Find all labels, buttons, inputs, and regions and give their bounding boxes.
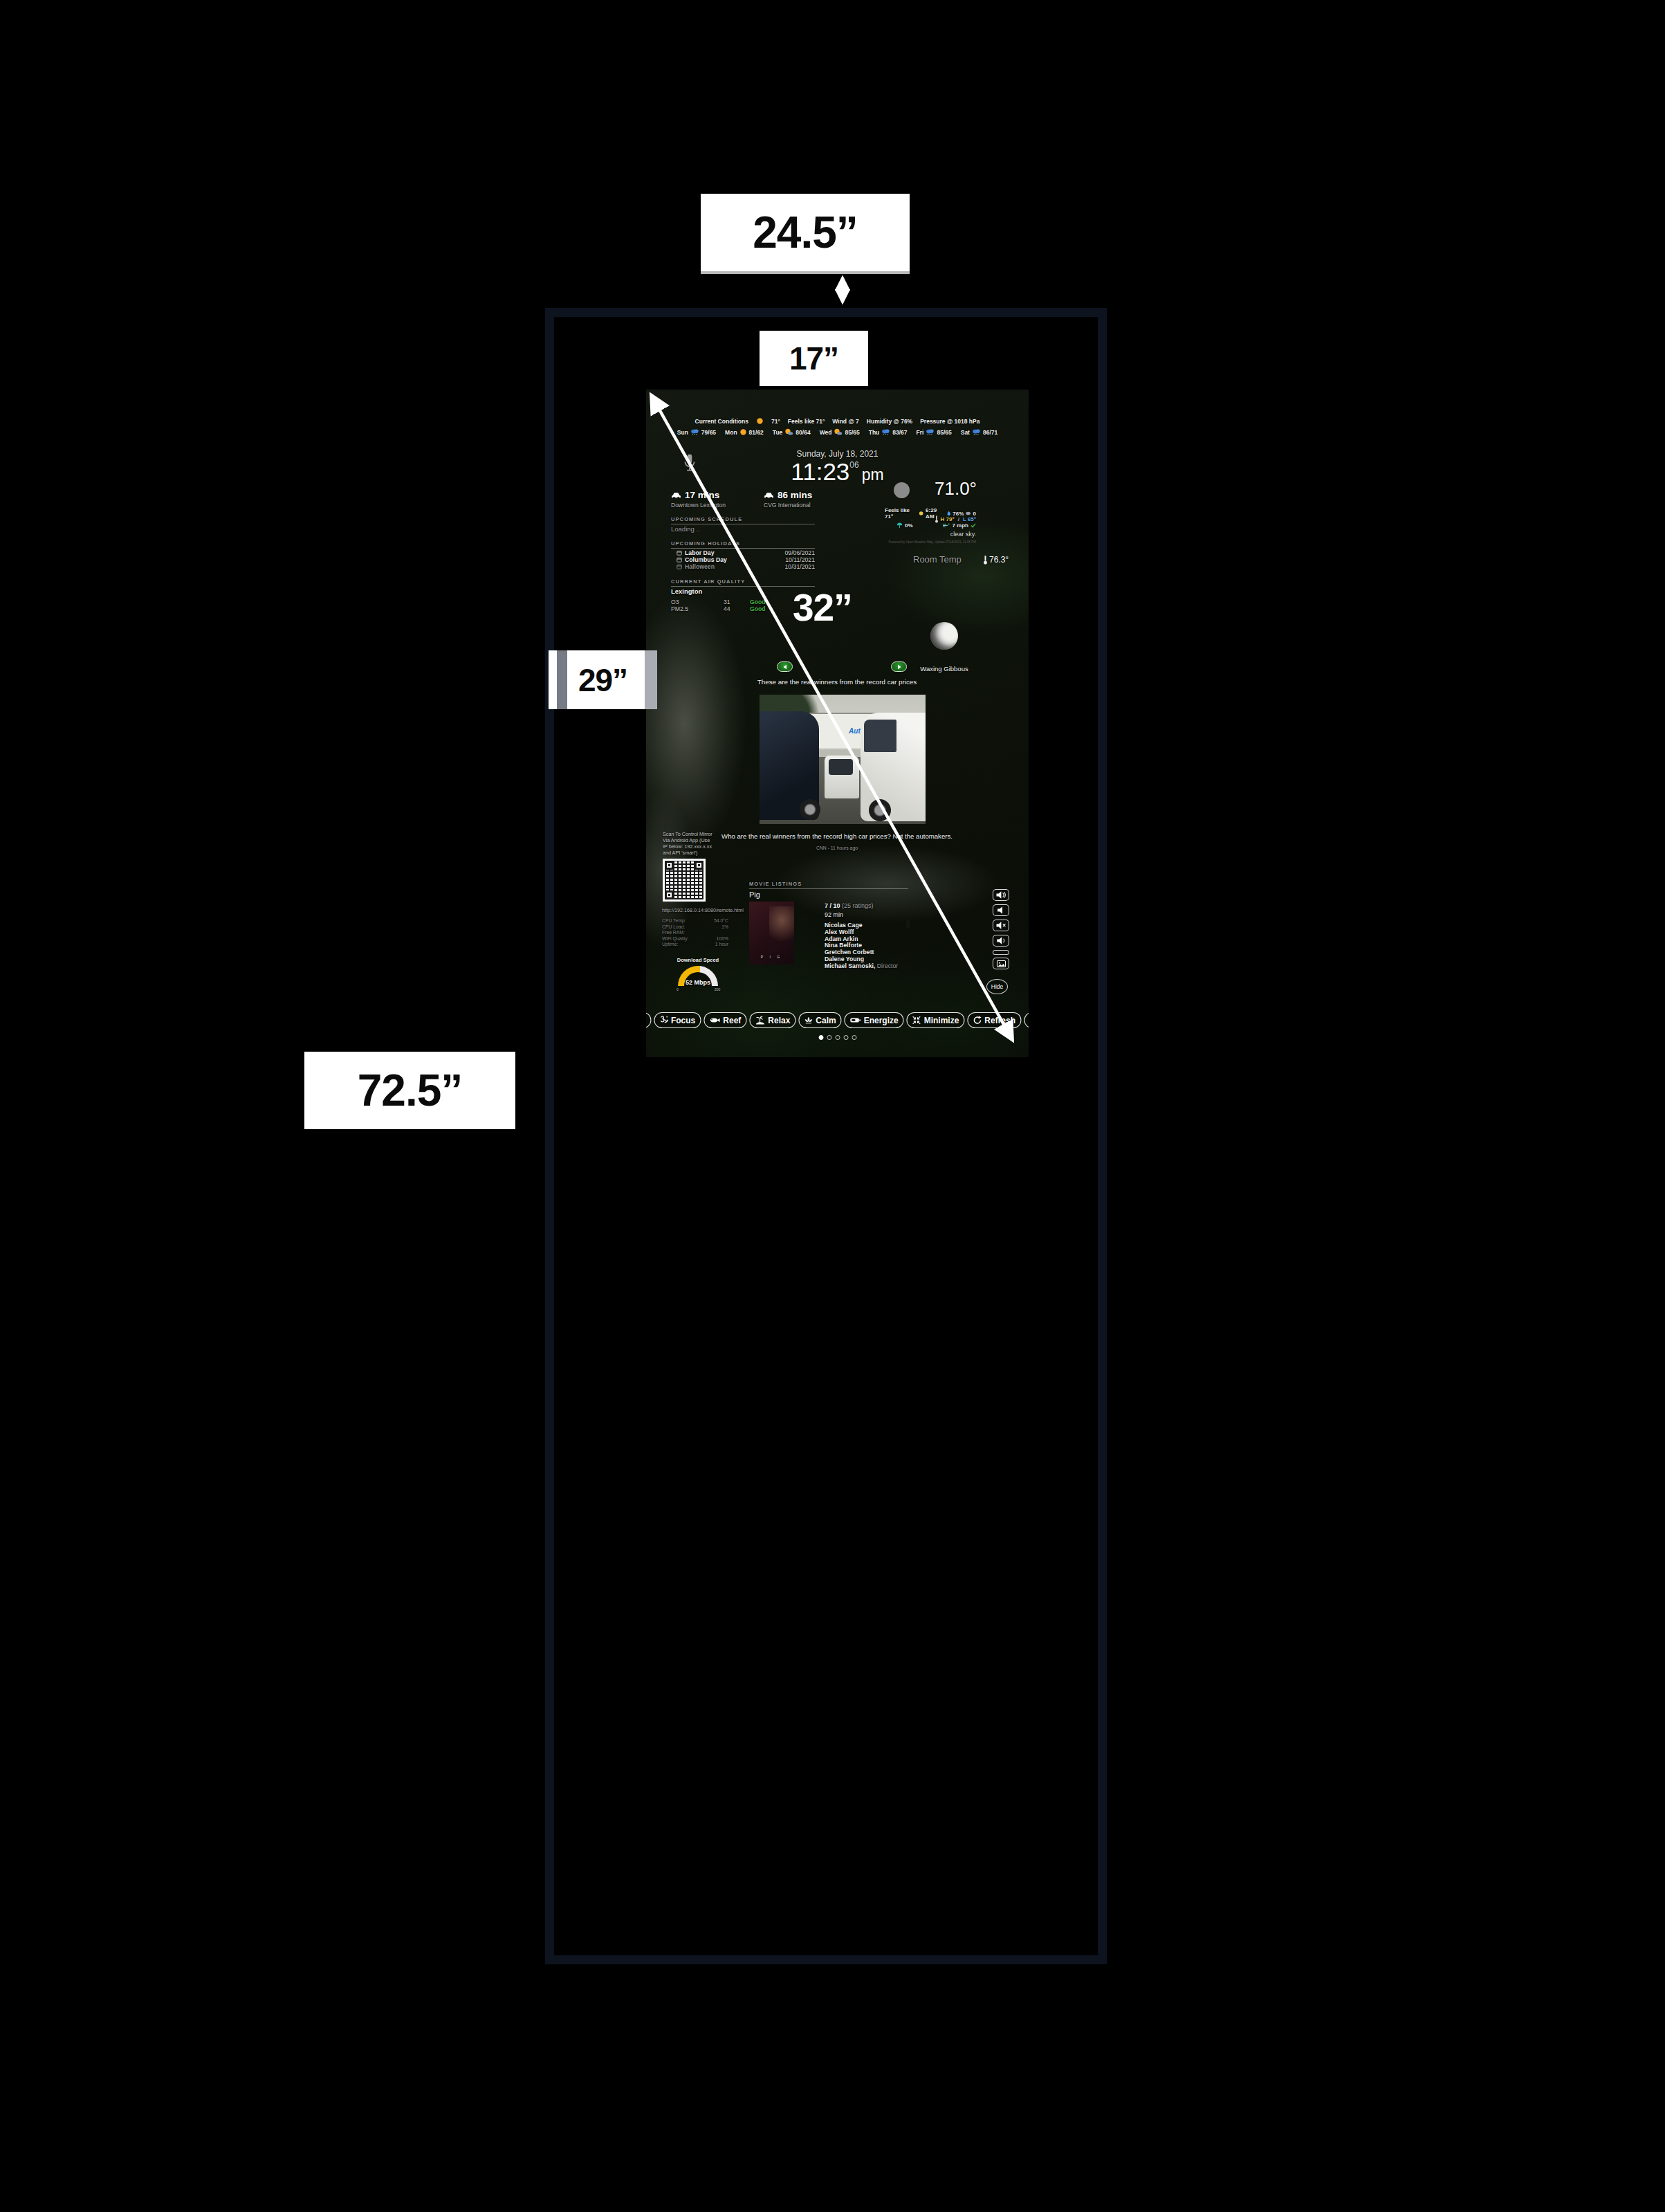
gauge-max: 200 (715, 987, 720, 991)
rain-cloud-icon (881, 428, 890, 436)
conditions-temp: 71° (771, 418, 780, 425)
qr-code (663, 859, 706, 902)
image-icon (995, 960, 1007, 968)
dimension-diagram: Current Conditions 71° Feels like 71° Wi… (0, 0, 1665, 2212)
previous-arrow-icon (782, 664, 788, 670)
air-quality-row: PM2.5 44 Good (671, 605, 775, 612)
page-dot[interactable] (843, 1035, 848, 1040)
conditions-wind: Wind @ 7 (832, 418, 858, 425)
movie-rating: 7 / 10 (25 ratings) (825, 902, 874, 909)
traffic-destination: CVG International (764, 502, 812, 509)
schedule-status: Loading .. (671, 525, 700, 533)
stat-row: Uptime:1 hour (662, 942, 728, 948)
news-source: CNN - 11 hours ago (699, 846, 975, 850)
conditions-feels: Feels like 71° (788, 418, 825, 425)
arrows-in-icon (912, 1016, 921, 1025)
volume-slider[interactable] (993, 950, 1009, 955)
weather-summary: clear sky. (885, 531, 976, 538)
volume-button[interactable] (993, 904, 1009, 916)
car-icon (764, 491, 774, 499)
mode-toolbar: Focus Reef Relax Calm Energize Minimize (646, 1012, 1029, 1028)
fast-forward-icon (1028, 1016, 1029, 1024)
news-previous-button[interactable] (777, 661, 793, 672)
movie-title: Pig (749, 890, 760, 899)
stat-row: Free RAM: (662, 930, 728, 936)
microphone-icon (682, 453, 697, 477)
qr-finder (665, 861, 674, 870)
person-silhouette (906, 920, 910, 929)
gauge-min: 0 (677, 987, 679, 991)
movie-runtime: 92 min (825, 911, 843, 918)
poster-title-text: P I G (749, 955, 794, 959)
qr-finder (665, 890, 674, 899)
energize-mode-button[interactable]: Energize (845, 1012, 904, 1028)
forecast-day: Tue 80/64 (773, 428, 811, 436)
speaker-mute-icon (995, 921, 1007, 930)
forecast-day: Wed 85/65 (820, 428, 860, 436)
news-image: AutoNation (760, 695, 926, 824)
holiday-row: Columbus Day 10/11/2021 (677, 556, 815, 563)
time-meridiem: pm (862, 466, 884, 484)
traffic-duration: 17 mins (685, 490, 719, 500)
conditions-title: Current Conditions (695, 418, 748, 425)
focus-mode-button[interactable]: Focus (654, 1012, 701, 1028)
holiday-row: Labor Day 09/06/2021 (677, 549, 815, 556)
page-dot[interactable] (852, 1035, 856, 1040)
umbrella-icon (896, 522, 903, 529)
speaker-loud-icon (995, 890, 1007, 899)
remote-url: http://192.168.0.14:8080/remote.html (662, 907, 744, 913)
calendar-icon (677, 557, 682, 563)
wind-direction-icon (971, 523, 976, 528)
relax-mode-button[interactable]: Relax (749, 1012, 795, 1028)
date-display: Sunday, July 18, 2021 (646, 449, 1029, 459)
page-dot[interactable] (827, 1035, 831, 1040)
page-indicator (818, 1035, 856, 1040)
moon-phase-label: Waxing Gibbous (910, 665, 979, 673)
traffic-destination: Downtown Lexington (671, 502, 726, 509)
conditions-pressure: Pressure @ 1018 hPa (920, 418, 979, 425)
total-height-dimension-label: 72.5” (304, 1052, 515, 1129)
conditions-humidity: Humidity @ 76% (867, 418, 912, 425)
traffic-duration: 86 mins (778, 490, 812, 500)
screen-edge-overlay (645, 650, 657, 709)
rewind-icon (646, 1016, 647, 1024)
fish-icon (709, 1016, 720, 1024)
speaker-icon (995, 906, 1007, 915)
download-speed-value: 52 Mbps (670, 979, 726, 986)
weather-condition-icon (894, 482, 910, 498)
refresh-button[interactable]: Refresh (967, 1012, 1021, 1028)
qr-finder (694, 861, 703, 870)
diagonal-dimension-label: 32” (793, 585, 852, 630)
car-wheel (800, 799, 820, 820)
traffic-item: 17 mins Downtown Lexington (671, 490, 726, 509)
movie-listings-header: MOVIE LISTINGS (749, 881, 908, 889)
news-caption: Who are the real winners from the record… (699, 832, 975, 840)
moon-phase-image (930, 622, 958, 650)
time-seconds: 06 (849, 460, 858, 470)
room-temp-label: Room Temp (913, 554, 962, 565)
battery-icon (850, 1016, 861, 1024)
partly-cloudy-icon (834, 428, 843, 436)
sun-icon (756, 417, 764, 425)
mute-button[interactable] (993, 920, 1009, 931)
volume-down-button[interactable] (993, 935, 1009, 947)
forecast-day: Sat 86/71 (961, 428, 998, 436)
depth-arrow (827, 271, 858, 309)
cast-member: Michael Sarnoski, Director (825, 963, 898, 970)
forecast-day: Thu 83/67 (869, 428, 908, 436)
white-car (825, 756, 859, 798)
room-temp-value: 76.3° (983, 555, 1009, 565)
previous-mode-button[interactable] (646, 1012, 651, 1028)
air-quality-row: O3 31 Good (671, 598, 775, 605)
stat-row: CPU Temp:54.0°C (662, 918, 728, 924)
current-conditions-bar: Current Conditions 71° Feels like 71° Wi… (646, 417, 1029, 425)
car-icon (671, 491, 681, 499)
rain-cloud-icon (926, 428, 935, 436)
traffic-item: 86 mins CVG International (764, 490, 812, 509)
forecast-day: Fri 85/65 (917, 428, 952, 436)
forecast-day: Sun 79/65 (677, 428, 716, 436)
next-mode-button[interactable] (1024, 1012, 1029, 1028)
weather-attribution: Powered by Open Weather Map, Update 07/1… (874, 540, 976, 544)
holidays-header: UPCOMING HOLIDAYS (671, 540, 815, 549)
movie-poster: P I G (749, 902, 794, 965)
thermometer-icon (983, 555, 988, 565)
system-stats: CPU Temp:54.0°C CPU Load:1% Free RAM: Wi… (662, 918, 728, 948)
smart-mirror-screen: Current Conditions 71° Feels like 71° Wi… (646, 390, 1029, 1057)
palm-tree-icon (755, 1016, 765, 1025)
next-arrow-icon (896, 664, 902, 670)
weather-precip-wind: 0% 7 mph (896, 522, 976, 529)
page-dot[interactable] (835, 1035, 840, 1040)
director-label: Director (877, 962, 898, 969)
calm-mode-button[interactable]: Calm (798, 1012, 841, 1028)
partly-cloudy-icon (784, 428, 793, 436)
download-speed-label: Download Speed (670, 957, 726, 963)
rain-cloud-icon (690, 428, 699, 436)
holiday-row: Halloween 10/31/2021 (677, 563, 815, 570)
forecast-day: Mon 81/62 (725, 428, 764, 436)
reef-mode-button[interactable]: Reef (703, 1012, 746, 1028)
qr-pattern (665, 861, 703, 899)
time-hours-minutes: 11:23 (791, 458, 849, 485)
hide-button[interactable]: Hide (986, 979, 1008, 994)
rain-cloud-icon (972, 428, 981, 436)
calendar-icon (677, 550, 682, 556)
air-quality-city: Lexington (671, 587, 702, 595)
speaker-low-icon (995, 936, 1007, 945)
forecast-bar: Sun 79/65 Mon 81/62 Tue 80/64 Wed 85/65 … (646, 428, 1029, 436)
refresh-icon (973, 1016, 982, 1025)
schedule-header: UPCOMING SCHEDULE (671, 516, 815, 524)
calendar-icon (677, 564, 682, 569)
current-temperature: 71.0° (935, 478, 977, 500)
sun-icon (739, 428, 747, 436)
depth-dimension-label: 24.5” (701, 194, 910, 274)
stat-row: CPU Load:1% (662, 924, 728, 931)
screen-width-dimension-label: 17” (760, 331, 868, 386)
background-image-button[interactable] (993, 958, 1009, 969)
scan-instructions: Scan To Control Mirror Via Android App (… (663, 831, 728, 856)
volume-up-button[interactable] (993, 889, 1009, 901)
news-next-button[interactable] (891, 661, 907, 672)
om-icon (659, 1016, 668, 1025)
page-dot[interactable] (818, 1035, 823, 1040)
news-headline: These are the real winners from the reco… (699, 678, 975, 686)
lotus-icon (804, 1016, 813, 1024)
minimize-button[interactable]: Minimize (907, 1012, 965, 1028)
frame-edge-overlay (557, 650, 567, 709)
movie-cast-list: Nicolas Cage Alex Wolff Adam Arkin Nina … (825, 922, 898, 970)
wind-icon (943, 523, 950, 528)
